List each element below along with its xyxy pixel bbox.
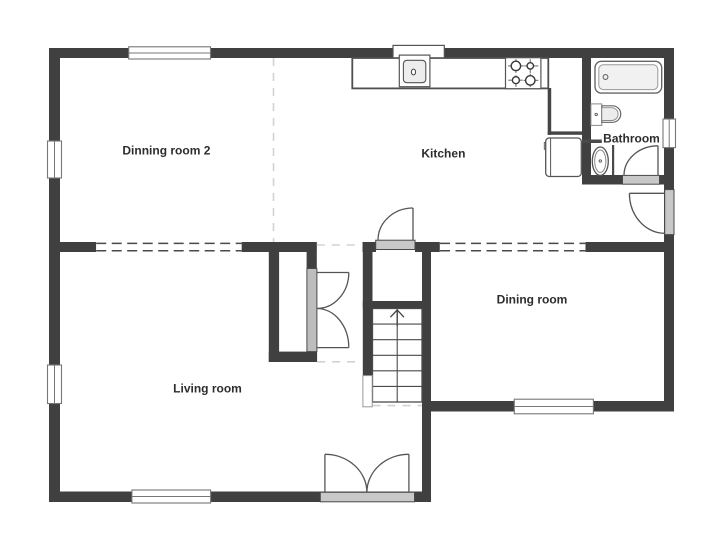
svg-text:Dinning room 2: Dinning room 2: [122, 144, 210, 158]
svg-text:Kitchen: Kitchen: [421, 147, 465, 161]
svg-text:Bathroom: Bathroom: [603, 132, 660, 146]
svg-text:Dining room: Dining room: [497, 293, 568, 307]
svg-text:Living room: Living room: [173, 382, 242, 396]
